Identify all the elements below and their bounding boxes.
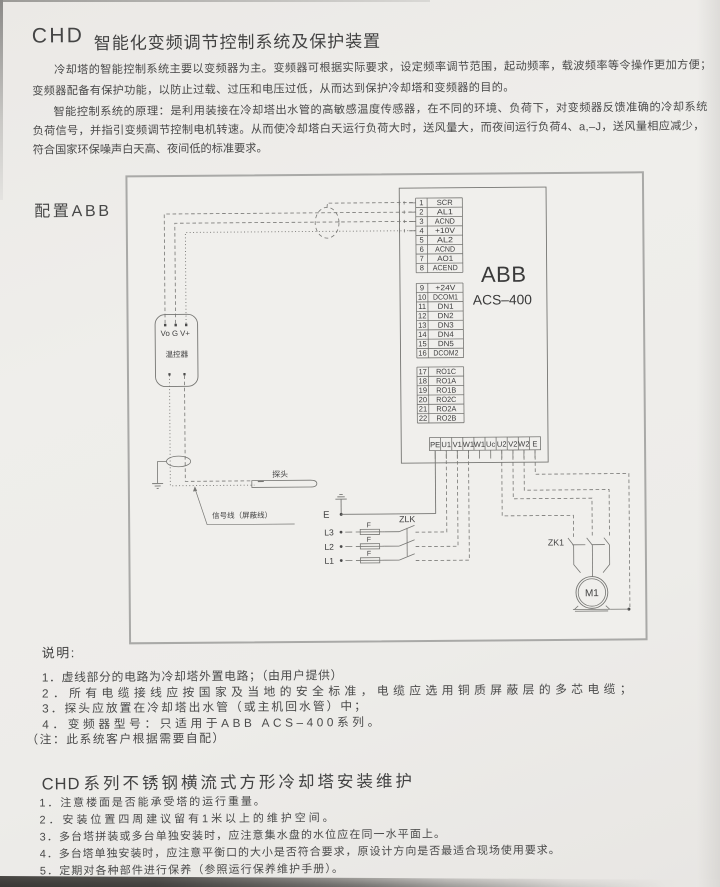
- svg-text:M1: M1: [585, 588, 599, 599]
- svg-text:DCOM2: DCOM2: [433, 348, 458, 357]
- svg-text:14: 14: [418, 330, 427, 339]
- svg-text:RO1B: RO1B: [436, 386, 456, 395]
- svg-text:V2: V2: [508, 440, 517, 449]
- svg-text:AL1: AL1: [437, 207, 453, 216]
- svg-text:SCR: SCR: [437, 198, 454, 207]
- svg-text:22: 22: [419, 414, 428, 423]
- svg-text:E: E: [532, 439, 537, 448]
- svg-text:RO2B: RO2B: [436, 414, 456, 423]
- svg-text:RO1A: RO1A: [436, 376, 457, 385]
- svg-text:15: 15: [418, 339, 427, 348]
- svg-text:PE: PE: [430, 440, 440, 449]
- svg-text:Uc: Uc: [486, 440, 496, 449]
- svg-text:20: 20: [419, 395, 428, 404]
- svg-text:RO1C: RO1C: [436, 367, 457, 376]
- svg-text:9: 9: [420, 283, 424, 292]
- svg-text:V1: V1: [453, 440, 462, 449]
- svg-text:W2: W2: [518, 439, 529, 448]
- svg-text:U1: U1: [441, 440, 451, 449]
- svg-text:21: 21: [419, 404, 428, 413]
- svg-text:12: 12: [418, 311, 427, 320]
- svg-text:RO2C: RO2C: [436, 395, 457, 404]
- svg-text:ACND: ACND: [435, 245, 456, 254]
- svg-text:ABB: ABB: [481, 262, 527, 287]
- svg-text:U2: U2: [497, 440, 507, 449]
- svg-text:ZK1: ZK1: [548, 537, 564, 547]
- svg-text:W1: W1: [463, 440, 474, 449]
- svg-text:F: F: [367, 551, 371, 558]
- svg-text:F: F: [367, 537, 371, 544]
- svg-text:1: 1: [419, 198, 423, 207]
- svg-text:8: 8: [420, 263, 424, 272]
- svg-text:DN2: DN2: [438, 311, 454, 320]
- svg-text:18: 18: [418, 376, 427, 385]
- svg-text:DN4: DN4: [438, 330, 454, 339]
- svg-text:DCOM1: DCOM1: [433, 292, 458, 301]
- svg-text:2: 2: [419, 207, 423, 216]
- svg-text:ZLK: ZLK: [399, 514, 415, 524]
- svg-text:13: 13: [418, 321, 427, 330]
- svg-text:4: 4: [419, 226, 423, 235]
- svg-text:17: 17: [418, 367, 427, 376]
- svg-text:W1: W1: [474, 440, 485, 449]
- svg-text:19: 19: [419, 386, 428, 395]
- svg-text:6: 6: [420, 245, 424, 254]
- svg-text:DN1: DN1: [438, 302, 454, 311]
- svg-text:5: 5: [419, 235, 423, 244]
- svg-text:+10V: +10V: [435, 226, 456, 235]
- svg-text:Vo G V+: Vo G V+: [161, 329, 191, 338]
- svg-text:L3: L3: [324, 527, 334, 537]
- svg-text:AL2: AL2: [437, 235, 453, 244]
- svg-text:ACND: ACND: [435, 217, 456, 226]
- svg-text:16: 16: [418, 349, 427, 358]
- svg-text:7: 7: [420, 254, 424, 263]
- svg-text:信号线（屏蔽线）: 信号线（屏蔽线）: [212, 510, 272, 520]
- svg-text:温控器: 温控器: [165, 349, 188, 359]
- svg-text:+24V: +24V: [435, 283, 456, 292]
- svg-text:ACS–400: ACS–400: [473, 292, 533, 307]
- svg-text:10: 10: [418, 293, 427, 302]
- svg-text:E: E: [323, 510, 329, 521]
- svg-text:DN3: DN3: [438, 320, 454, 329]
- svg-text:F: F: [367, 522, 371, 529]
- svg-text:探头: 探头: [272, 469, 288, 479]
- svg-text:3: 3: [419, 217, 423, 226]
- svg-text:AO1: AO1: [437, 254, 453, 263]
- svg-text:ACEND: ACEND: [433, 263, 459, 272]
- svg-text:RO2A: RO2A: [436, 404, 457, 413]
- svg-text:L2: L2: [324, 542, 334, 552]
- svg-text:DN5: DN5: [438, 339, 454, 348]
- svg-text:L1: L1: [324, 556, 334, 566]
- svg-text:11: 11: [418, 302, 426, 311]
